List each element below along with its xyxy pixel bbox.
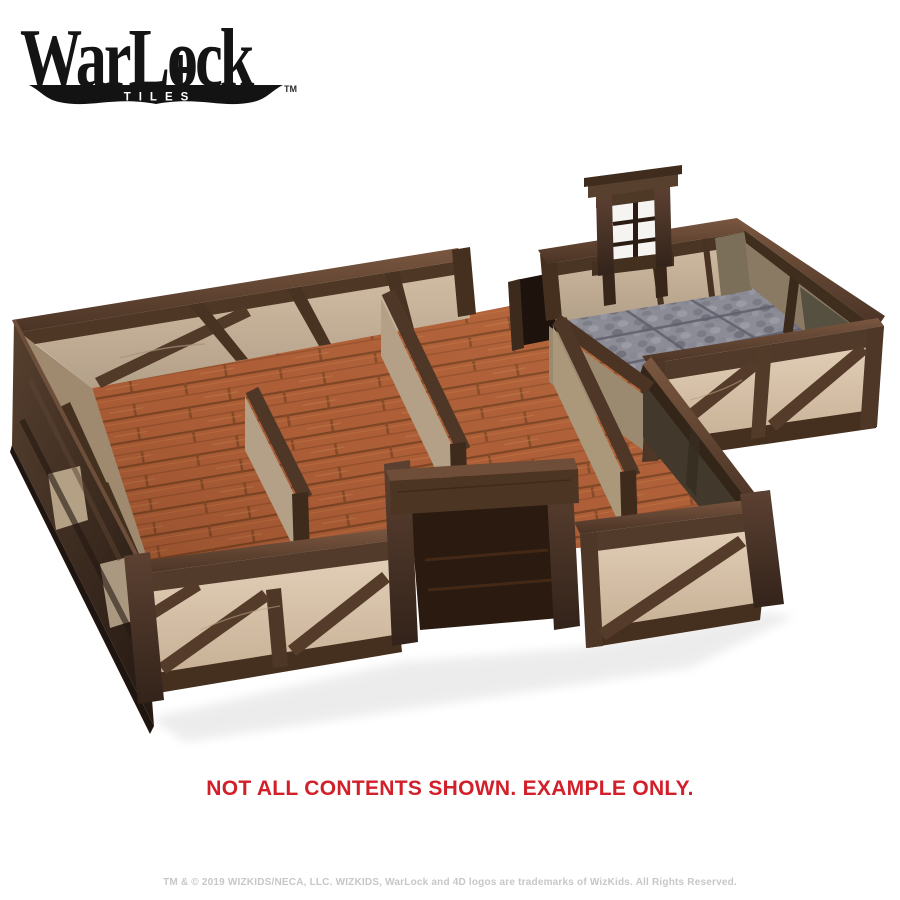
warlock-tiles-structure [10, 165, 885, 742]
warlock-tiles-logo: WarLock TILES TM [20, 10, 320, 122]
logo-tiles-text: TILES [124, 92, 197, 104]
legal-copyright: TM & © 2019 WIZKIDS/NECA, LLC. WIZKIDS, … [0, 877, 900, 888]
contents-disclaimer: NOT ALL CONTENTS SHOWN. EXAMPLE ONLY. [0, 777, 900, 801]
door-frame [384, 458, 580, 646]
tiles-product-render [0, 0, 900, 900]
logo-tiles-banner: TILES [28, 84, 284, 110]
product-page: WarLock TILES TM NOT ALL CONTENTS SHOWN.… [0, 0, 900, 900]
trademark-symbol: TM [284, 84, 297, 94]
